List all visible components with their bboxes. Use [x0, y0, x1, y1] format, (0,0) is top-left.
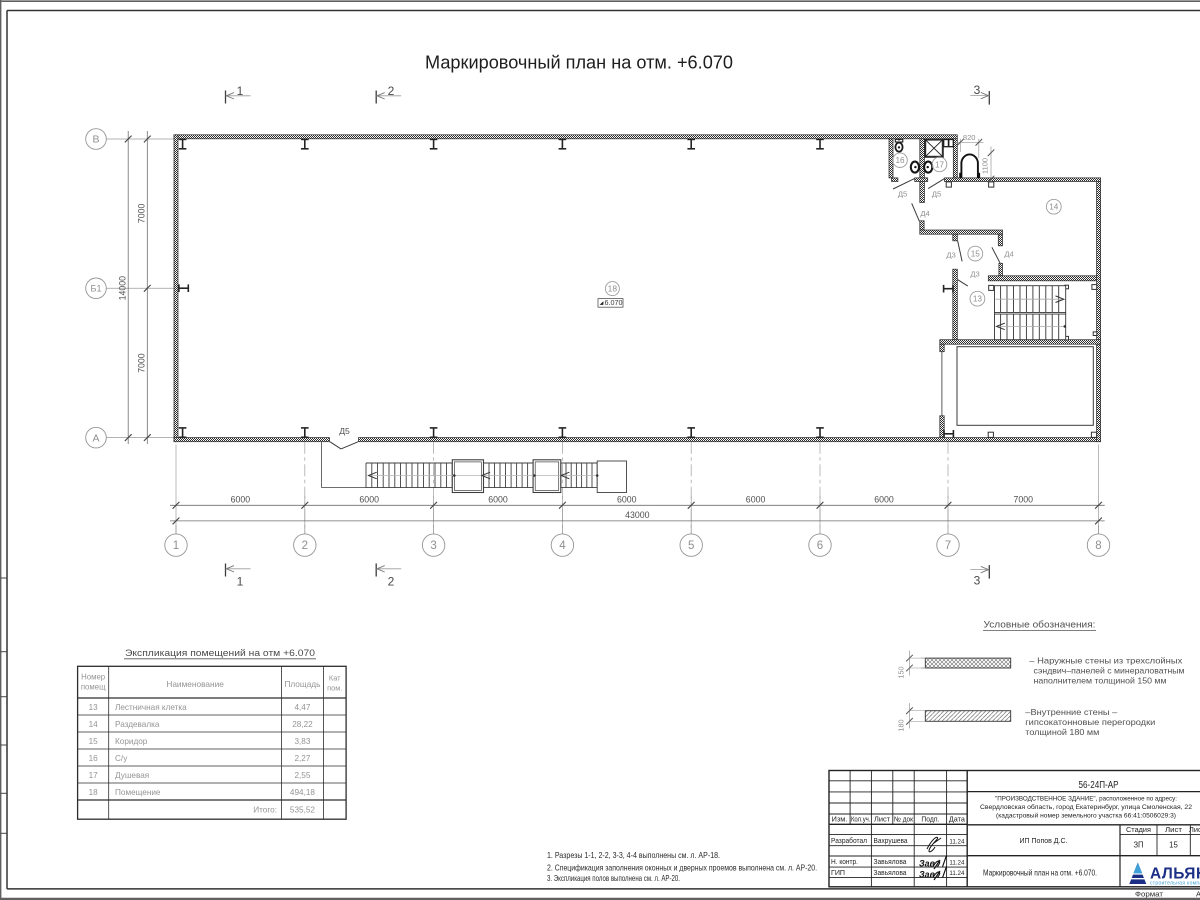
- svg-text:11.24: 11.24: [949, 859, 964, 866]
- svg-text:6000: 6000: [617, 494, 637, 504]
- svg-text:43000: 43000: [625, 510, 650, 520]
- svg-text:11.24: 11.24: [949, 838, 964, 845]
- svg-text:15: 15: [89, 737, 99, 746]
- svg-text:1: 1: [237, 575, 244, 589]
- svg-text:18: 18: [608, 284, 618, 294]
- svg-text:Формат: Формат: [1135, 890, 1164, 899]
- svg-text:17: 17: [89, 771, 99, 780]
- svg-text:3,83: 3,83: [294, 737, 310, 746]
- svg-text:7000: 7000: [1013, 494, 1033, 504]
- svg-text:14000: 14000: [118, 276, 128, 301]
- svg-text:ГИП: ГИП: [831, 870, 845, 877]
- svg-text:3: 3: [430, 540, 436, 552]
- svg-text:– Наружные стены из трехслойны: – Наружные стены из трехслойных: [1029, 655, 1183, 665]
- svg-text:Свердловская область, город Ек: Свердловская область, город Екатеринбург…: [980, 803, 1192, 811]
- svg-text:Маркировочный план на отм. +6.: Маркировочный план на отм. +6.070.: [983, 867, 1097, 877]
- svg-text:6000: 6000: [488, 494, 508, 504]
- svg-text:1: 1: [237, 84, 244, 98]
- svg-text:4: 4: [559, 540, 566, 552]
- svg-text:Дата: Дата: [949, 814, 965, 823]
- svg-text:Душевая: Душевая: [115, 771, 149, 780]
- svg-text:4,47: 4,47: [294, 703, 310, 712]
- svg-text:2,55: 2,55: [294, 771, 310, 780]
- svg-text:гипсокатонновые перегородки: гипсокатонновые перегородки: [1025, 717, 1155, 727]
- svg-text:Коридор: Коридор: [115, 737, 148, 746]
- svg-text:Б1: Б1: [91, 283, 102, 293]
- svg-text:Экспликация помещений на отм +: Экспликация помещений на отм +6.070: [125, 648, 315, 659]
- svg-text:15: 15: [971, 249, 981, 258]
- svg-text:ИП Попов Д.С.: ИП Попов Д.С.: [1020, 836, 1068, 845]
- svg-text:наполнителем толщиной 150 мм: наполнителем толщиной 150 мм: [1034, 675, 1167, 685]
- svg-text:Лист: Лист: [874, 814, 891, 823]
- svg-text:Маркировочный план на отм. +6.: Маркировочный план на отм. +6.070: [425, 52, 733, 73]
- svg-text:Площадь: Площадь: [284, 679, 320, 689]
- svg-text:28,22: 28,22: [292, 720, 313, 729]
- svg-text:А3: А3: [1196, 890, 1200, 899]
- svg-text:Листов: Листов: [1189, 827, 1200, 834]
- svg-text:2: 2: [302, 540, 308, 552]
- svg-text:13: 13: [973, 295, 983, 304]
- svg-text:А: А: [92, 432, 99, 444]
- svg-text:150: 150: [897, 667, 906, 679]
- svg-text:2. Спецификация заполнения око: 2. Спецификация заполнения оконных и две…: [547, 864, 817, 873]
- svg-text:16: 16: [895, 156, 905, 165]
- svg-text:6000: 6000: [746, 494, 766, 504]
- svg-text:14: 14: [1049, 203, 1059, 212]
- svg-text:6000: 6000: [231, 494, 251, 504]
- svg-text:Д5: Д5: [898, 190, 907, 199]
- svg-text:5: 5: [688, 540, 694, 552]
- svg-text:18: 18: [89, 788, 99, 797]
- svg-text:Зав: Зав: [919, 858, 936, 868]
- svg-text:Д3: Д3: [970, 269, 979, 278]
- svg-text:С/у: С/у: [115, 754, 128, 763]
- svg-text:Стадия: Стадия: [1126, 827, 1151, 834]
- svg-text:6.070: 6.070: [605, 298, 623, 307]
- svg-text:Кол.уч.: Кол.уч.: [851, 814, 871, 823]
- svg-text:14: 14: [89, 720, 99, 729]
- svg-text:Лист: Лист: [1165, 827, 1183, 834]
- svg-text:7000: 7000: [137, 204, 147, 224]
- svg-text:Н. контр.: Н. контр.: [831, 859, 858, 866]
- svg-text:Завьялова: Завьялова: [874, 859, 907, 866]
- svg-text:6000: 6000: [359, 494, 379, 504]
- svg-text:В: В: [92, 134, 99, 146]
- svg-text:помещ: помещ: [81, 683, 106, 692]
- svg-text:15: 15: [1169, 841, 1178, 850]
- svg-text:ЗП: ЗП: [1133, 841, 1143, 850]
- svg-text:494,18: 494,18: [290, 788, 315, 797]
- svg-text:11.24: 11.24: [949, 870, 964, 877]
- svg-text:сэндвич–панелей с минераловатн: сэндвич–панелей с минераловатным: [1034, 665, 1185, 675]
- svg-text:пом.: пом.: [327, 684, 342, 693]
- svg-text:2: 2: [388, 575, 395, 589]
- svg-text:2: 2: [388, 84, 395, 98]
- svg-text:1: 1: [173, 540, 179, 552]
- svg-text:Условные обозначения:: Условные обозначения:: [984, 620, 1096, 631]
- svg-text:Наименование: Наименование: [166, 679, 224, 689]
- svg-text:16: 16: [89, 754, 99, 763]
- svg-text:Номер: Номер: [81, 673, 106, 682]
- svg-text:Раздевалка: Раздевалка: [115, 720, 160, 729]
- svg-text:1. Разрезы 1-1, 2-2, 3-3, 4-4: 1. Разрезы 1-1, 2-2, 3-3, 4-4 выполнены …: [547, 851, 720, 860]
- svg-text:Д5: Д5: [339, 426, 350, 436]
- svg-text:Лестничная клетка: Лестничная клетка: [115, 703, 187, 712]
- svg-text:820: 820: [963, 133, 976, 142]
- svg-text:Изм.: Изм.: [832, 814, 848, 823]
- svg-text:17: 17: [935, 160, 945, 169]
- svg-text:8: 8: [1095, 540, 1101, 552]
- svg-text:Завьялова: Завьялова: [874, 870, 907, 877]
- svg-text:№ док: № док: [894, 814, 914, 823]
- svg-text:Кат: Кат: [329, 674, 341, 683]
- svg-text:7: 7: [945, 540, 951, 552]
- svg-text:Д4: Д4: [1004, 250, 1013, 259]
- svg-text:180: 180: [897, 720, 906, 732]
- svg-text:толщиной 180 мм: толщиной 180 мм: [1025, 727, 1099, 737]
- svg-text:строительная компания: строительная компания: [1150, 881, 1200, 887]
- svg-text:2,27: 2,27: [294, 754, 310, 763]
- svg-text:3: 3: [974, 574, 981, 588]
- svg-text:6: 6: [817, 540, 823, 552]
- svg-text:Зав: Зав: [919, 869, 936, 879]
- svg-text:535,52: 535,52: [290, 806, 315, 815]
- svg-text:3. Экспликация полов выполнена: 3. Экспликация полов выполнена см. л. АР…: [547, 874, 680, 883]
- svg-text:"ПРОИЗВОДСТВЕННОЕ ЗДАНИЕ", рас: "ПРОИЗВОДСТВЕННОЕ ЗДАНИЕ", расположенное…: [995, 795, 1177, 802]
- svg-text:–Внутренние стены –: –Внутренние стены –: [1025, 707, 1117, 717]
- svg-text:Д3: Д3: [946, 250, 955, 259]
- svg-text:13: 13: [89, 703, 99, 712]
- svg-text:Помещение: Помещение: [115, 788, 161, 797]
- svg-text:7000: 7000: [137, 353, 147, 373]
- svg-text:Вахрушева: Вахрушева: [874, 838, 908, 845]
- svg-text:Итого:: Итого:: [253, 806, 277, 815]
- svg-text:Подп.: Подп.: [921, 814, 939, 823]
- svg-text:1100: 1100: [980, 158, 989, 174]
- svg-text:Разработал: Разработал: [831, 837, 867, 845]
- svg-text:(кадастровый номер земельного: (кадастровый номер земельного участка 66…: [996, 811, 1176, 819]
- svg-text:56-24П-АР: 56-24П-АР: [1079, 780, 1119, 791]
- svg-text:Д4: Д4: [920, 209, 929, 218]
- svg-text:6000: 6000: [874, 494, 894, 504]
- svg-text:Д5: Д5: [932, 189, 941, 198]
- svg-text:3: 3: [974, 83, 981, 97]
